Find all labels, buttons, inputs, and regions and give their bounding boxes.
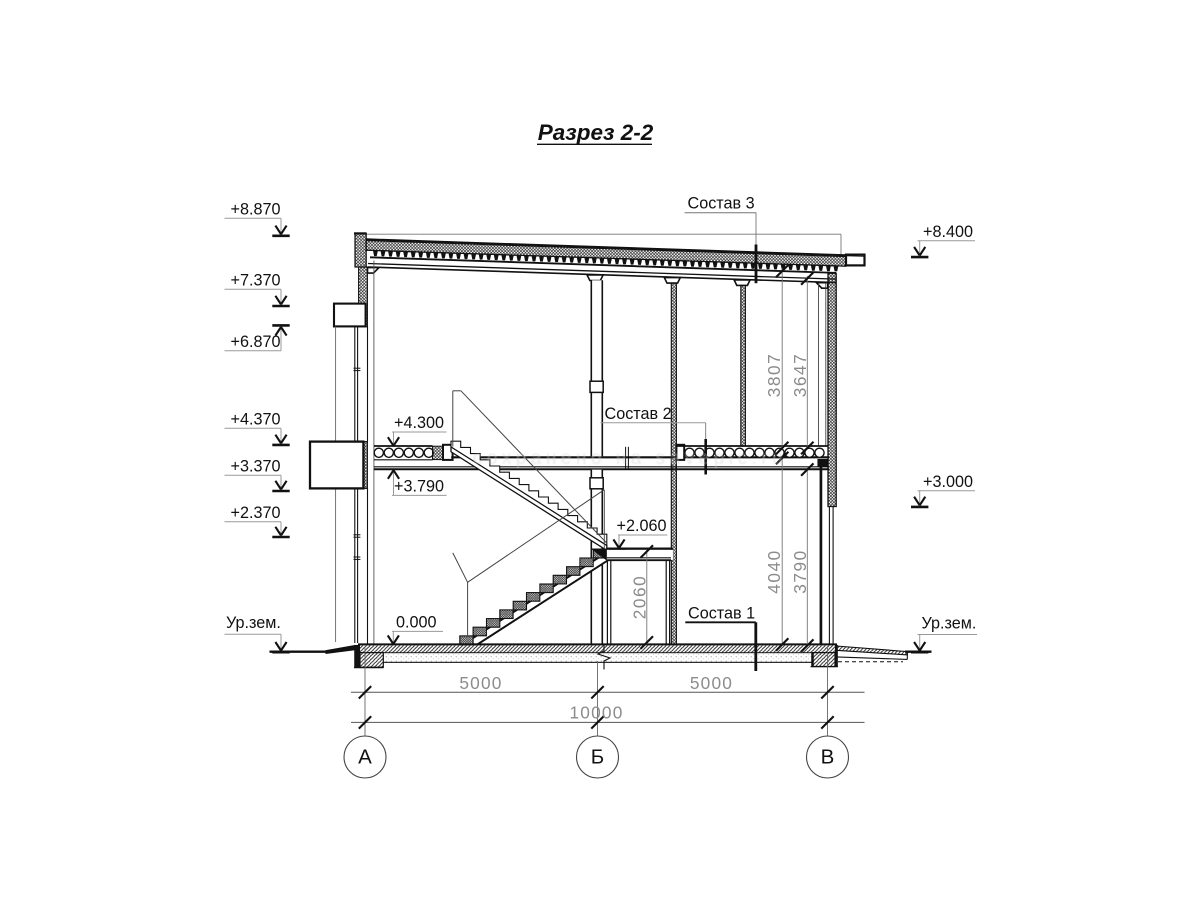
svg-text:5000: 5000	[459, 673, 502, 693]
svg-text:Разрез 2-2: Разрез 2-2	[538, 120, 654, 145]
svg-text:+6.870: +6.870	[231, 333, 281, 351]
svg-text:Состав 1: Состав 1	[688, 605, 755, 623]
svg-text:+8.400: +8.400	[923, 223, 973, 241]
svg-text:3807: 3807	[764, 353, 784, 397]
svg-text:+8.870: +8.870	[231, 201, 281, 219]
svg-text:+3.370: +3.370	[231, 458, 281, 476]
svg-text:+2.060: +2.060	[617, 517, 667, 535]
svg-text:+2.370: +2.370	[231, 504, 281, 522]
svg-text:5000: 5000	[690, 673, 733, 693]
svg-text:Ур.зем.: Ур.зем.	[922, 615, 977, 633]
svg-text:10000: 10000	[569, 703, 623, 723]
svg-text:сохранено на savepic.ru: сохранено на savepic.ru	[473, 448, 788, 469]
svg-text:+7.370: +7.370	[231, 272, 281, 290]
svg-text:+4.370: +4.370	[231, 411, 281, 429]
svg-text:Б: Б	[591, 745, 604, 768]
svg-text:+3.000: +3.000	[923, 473, 973, 491]
svg-text:В: В	[821, 745, 835, 768]
svg-text:0.000: 0.000	[396, 614, 437, 632]
svg-text:+4.300: +4.300	[394, 414, 444, 432]
svg-text:Ур.зем.: Ур.зем.	[226, 614, 281, 632]
svg-text:А: А	[358, 745, 372, 768]
svg-text:+3.790: +3.790	[394, 478, 444, 496]
svg-text:4040: 4040	[764, 549, 784, 593]
svg-text:Состав 3: Состав 3	[688, 195, 755, 213]
svg-text:Состав 2: Состав 2	[605, 405, 672, 423]
